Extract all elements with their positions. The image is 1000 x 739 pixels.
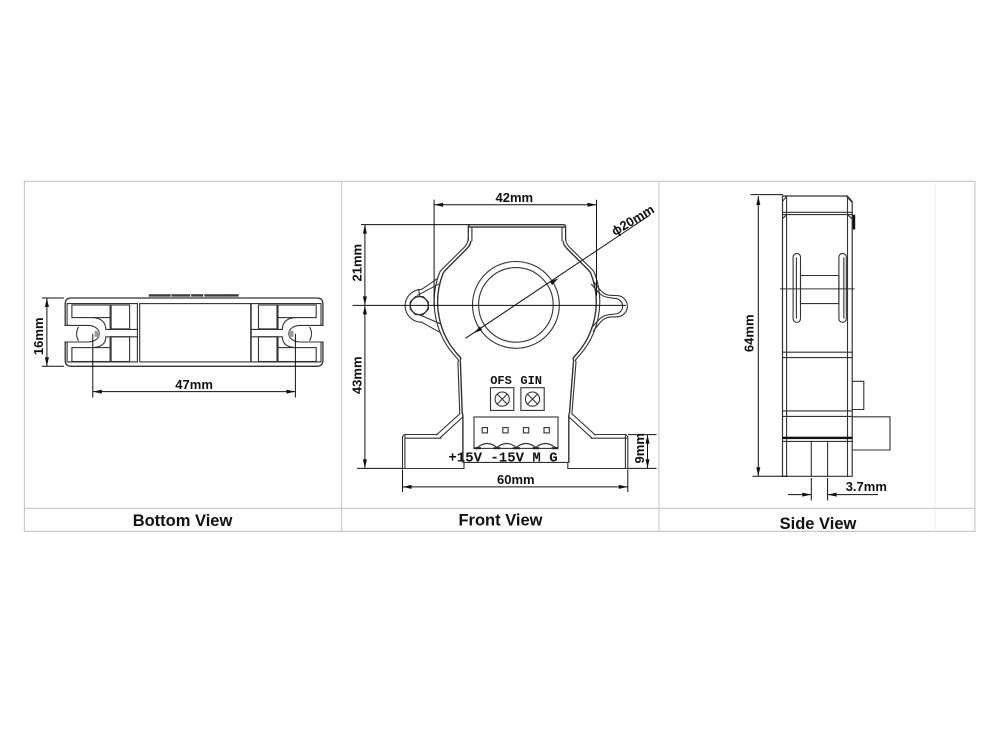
svg-text:64mm: 64mm [742,315,757,353]
svg-text:GIN: GIN [520,374,542,388]
svg-text:42mm: 42mm [496,190,534,205]
svg-text:+15V -15V M G: +15V -15V M G [448,451,557,467]
svg-text:60mm: 60mm [497,472,535,487]
svg-text:3.7mm: 3.7mm [846,479,887,494]
svg-text:OFS: OFS [490,374,512,388]
svg-text:9mm: 9mm [632,433,647,463]
svg-text:Side View: Side View [780,515,857,533]
svg-text:Bottom View: Bottom View [133,512,233,530]
svg-text:43mm: 43mm [350,357,365,395]
svg-text:ϕ20mm: ϕ20mm [609,202,657,239]
svg-text:16mm: 16mm [31,318,46,356]
svg-text:47mm: 47mm [175,377,213,392]
svg-text:21mm: 21mm [350,244,365,282]
svg-text:Front View: Front View [458,512,542,530]
